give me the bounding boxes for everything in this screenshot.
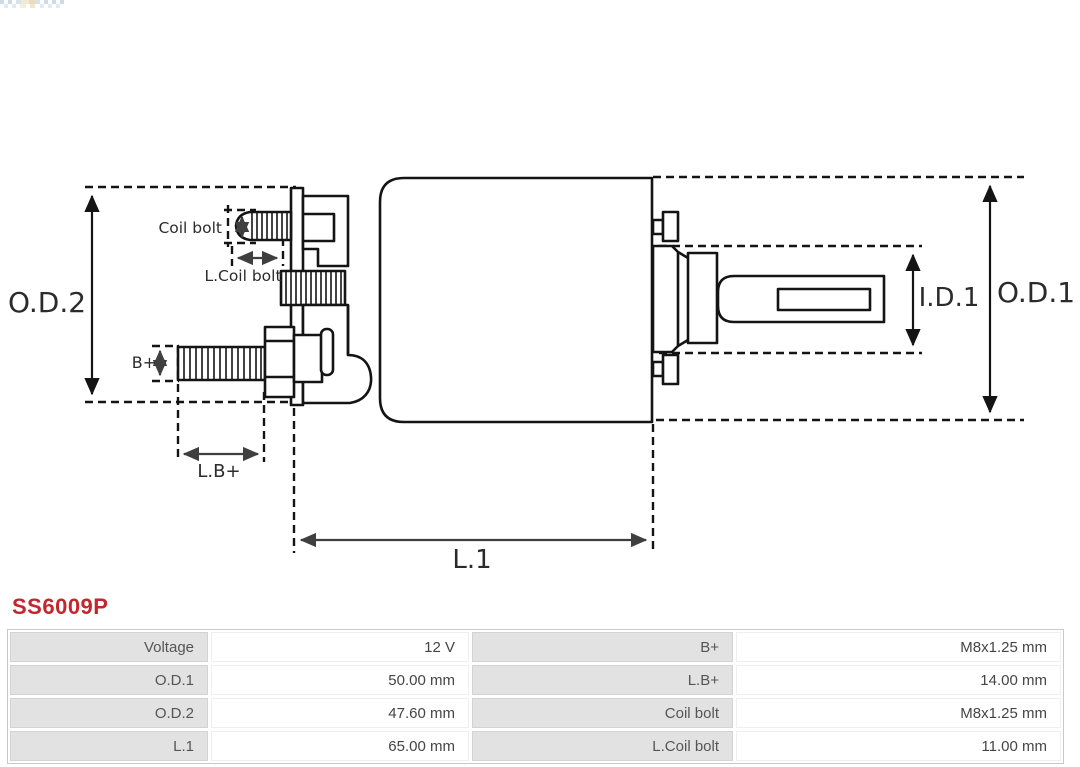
b-plus-label: B+ [132,353,156,372]
solenoid-technical-drawing: O.D.2 O.D.1 I.D.1 L.1 Coil bolt L.Coil b… [0,0,1080,592]
spec-label: L.B+ [472,665,733,695]
b-plus-nut [265,327,294,397]
coil-bolt-label: Coil bolt [158,219,222,237]
spec-label: L.Coil bolt [472,731,733,761]
spec-label: L.1 [10,731,208,761]
b-plus-bolt [178,347,265,380]
spec-label: Voltage [10,632,208,662]
coil-bolt [236,212,291,240]
part-number: SS6009P [12,594,108,620]
spec-label: Coil bolt [472,698,733,728]
spec-label: B+ [472,632,733,662]
spec-table: Voltage 12 V B+ M8x1.25 mm O.D.1 50.00 m… [7,629,1064,764]
l1-label: L.1 [452,545,491,575]
od1-label: O.D.1 [997,276,1075,309]
spec-value: 11.00 mm [736,731,1061,761]
spec-value: 47.60 mm [211,698,469,728]
solenoid-body [380,178,652,422]
od2-label: O.D.2 [8,286,86,319]
id1-label: I.D.1 [919,283,980,313]
spec-label: O.D.2 [10,698,208,728]
spec-value: M8x1.25 mm [736,698,1061,728]
spec-value: 50.00 mm [211,665,469,695]
spec-value: 12 V [211,632,469,662]
plunger-assembly [653,246,884,352]
spec-label: O.D.1 [10,665,208,695]
product-drawing-page: O.D.2 O.D.1 I.D.1 L.1 Coil bolt L.Coil b… [0,0,1080,767]
b-plus-seat [294,335,322,382]
spec-value: M8x1.25 mm [736,632,1061,662]
solenoid-outline [178,178,884,422]
spec-value: 65.00 mm [211,731,469,761]
spec-value: 14.00 mm [736,665,1061,695]
l-coil-bolt-label: L.Coil bolt [204,267,281,285]
b-plus-washer [321,329,333,375]
coil-thread-bushing [281,271,345,305]
upper-bracket [303,196,348,266]
lb-plus-label: L.B+ [197,461,240,482]
plunger-slot [778,289,870,310]
